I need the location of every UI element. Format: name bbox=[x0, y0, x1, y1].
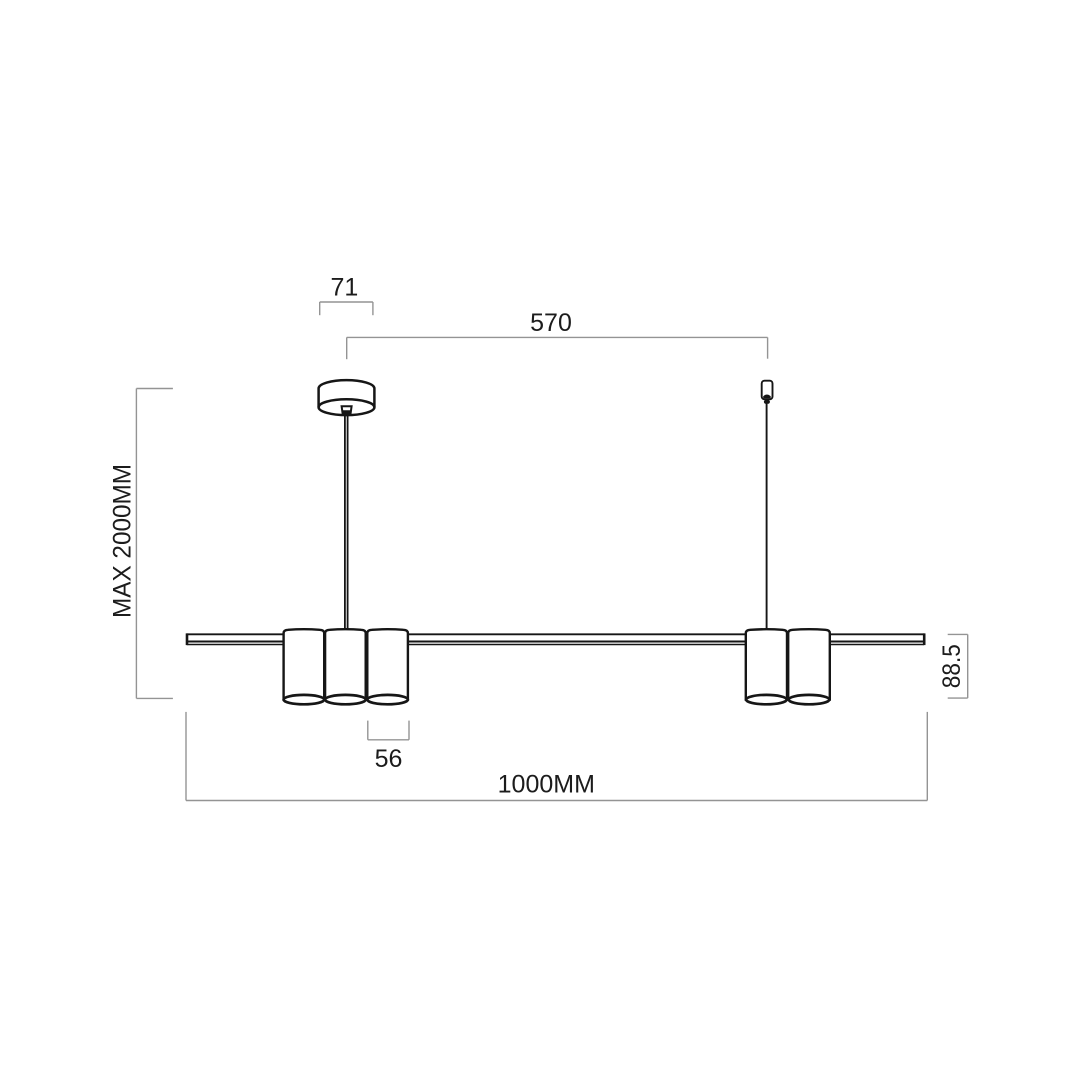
svg-text:56: 56 bbox=[375, 745, 403, 773]
svg-text:88.5: 88.5 bbox=[938, 644, 966, 688]
svg-text:1000MM: 1000MM bbox=[498, 771, 595, 799]
svg-text:MAX 2000MM: MAX 2000MM bbox=[108, 464, 136, 618]
svg-text:570: 570 bbox=[530, 309, 572, 337]
svg-text:71: 71 bbox=[330, 274, 358, 302]
